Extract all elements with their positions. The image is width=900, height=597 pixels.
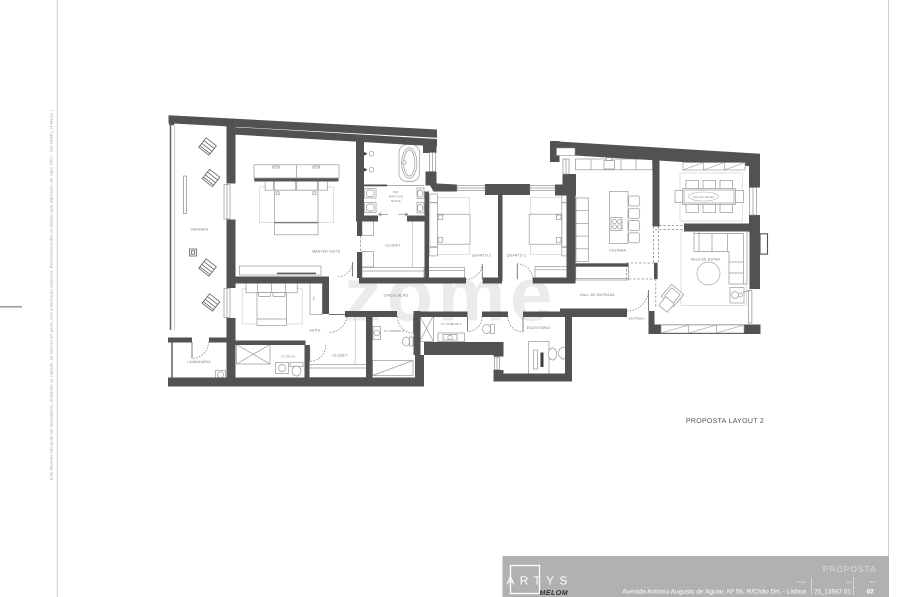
svg-text:CLOSET: CLOSET: [332, 354, 347, 358]
svg-text:HALL DE ENTRADA: HALL DE ENTRADA: [580, 293, 615, 297]
svg-text:proc: proc: [846, 580, 852, 584]
svg-text:IS COMUM 1: IS COMUM 1: [441, 322, 461, 326]
svg-text:02: 02: [867, 589, 875, 596]
svg-text:ESCRITÓRIO: ESCRITÓRIO: [527, 326, 551, 330]
svg-text:LAVANDARIA: LAVANDARIA: [187, 360, 211, 364]
svg-text:SUITE: SUITE: [309, 329, 321, 333]
svg-text:SALA DE ESTAR: SALA DE ESTAR: [691, 258, 721, 262]
svg-text:VARANDA: VARANDA: [191, 228, 209, 232]
svg-text:Este desenho não pode ser repr: Este desenho não pode ser reproduzido, d…: [50, 109, 54, 480]
svg-text:Des: Des: [870, 580, 876, 584]
svg-text:SALA DE JANTAR: SALA DE JANTAR: [693, 196, 715, 199]
svg-text:CLOSET: CLOSET: [385, 244, 400, 248]
svg-text:MELOM: MELOM: [540, 590, 569, 597]
svg-text:morada: morada: [797, 580, 807, 584]
svg-text:QUARTO 1: QUARTO 1: [507, 254, 526, 258]
svg-text:ENTRADA: ENTRADA: [629, 317, 645, 321]
svg-text:MASTER SUITE: MASTER SUITE: [312, 250, 341, 254]
svg-text:ARTYS: ARTYS: [507, 573, 573, 587]
svg-text:IS COMUM 2: IS COMUM 2: [384, 329, 404, 333]
svg-text:CIRCULAÇÃO: CIRCULAÇÃO: [384, 294, 409, 298]
svg-text:WC: WC: [393, 190, 399, 194]
svg-text:Avenida António Augusto de Agu: Avenida António Augusto de Aguiar, Nº 56…: [622, 589, 806, 596]
svg-text:PROPOSTA: PROPOSTA: [823, 564, 877, 574]
svg-text:IS SUITE: IS SUITE: [281, 355, 296, 359]
svg-text:25_13567.01: 25_13567.01: [814, 589, 851, 596]
svg-text:PROPOSTA LAYOUT 2: PROPOSTA LAYOUT 2: [686, 418, 764, 425]
svg-text:MASTER: MASTER: [389, 195, 404, 199]
svg-text:COZINHA: COZINHA: [609, 249, 626, 253]
svg-text:QUARTO 2: QUARTO 2: [472, 254, 491, 258]
svg-text:SUITE: SUITE: [391, 199, 401, 203]
